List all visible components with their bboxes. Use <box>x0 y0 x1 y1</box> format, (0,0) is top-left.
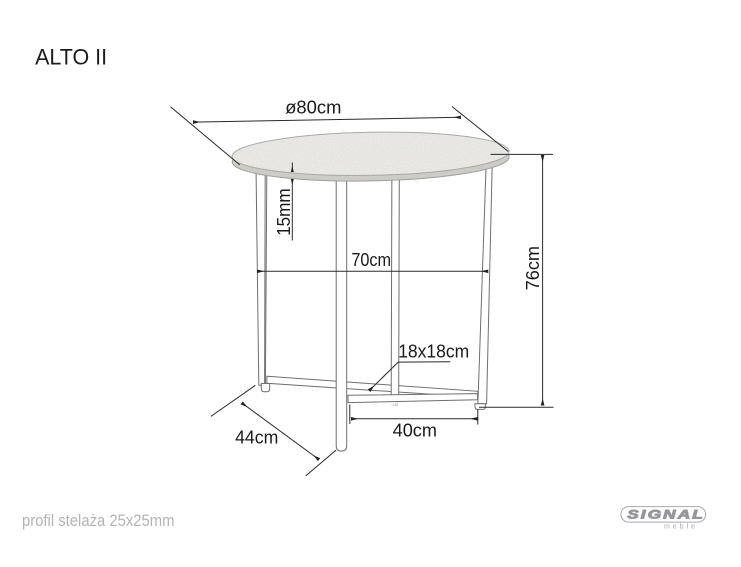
svg-text:40cm: 40cm <box>393 420 437 441</box>
svg-text:44cm: 44cm <box>235 426 278 447</box>
svg-text:ALTO II: ALTO II <box>35 44 107 69</box>
svg-text:profil stelaża 25x25mm: profil stelaża 25x25mm <box>22 511 175 530</box>
svg-text:meble: meble <box>664 524 698 531</box>
svg-text:ø80cm: ø80cm <box>285 96 341 117</box>
svg-text:15mm: 15mm <box>273 188 294 235</box>
svg-text:LB: LB <box>393 402 399 407</box>
svg-text:18x18cm: 18x18cm <box>398 340 469 361</box>
svg-text:70cm: 70cm <box>351 249 391 270</box>
svg-text:SIGNAL: SIGNAL <box>627 509 705 522</box>
svg-text:76cm: 76cm <box>522 246 543 290</box>
